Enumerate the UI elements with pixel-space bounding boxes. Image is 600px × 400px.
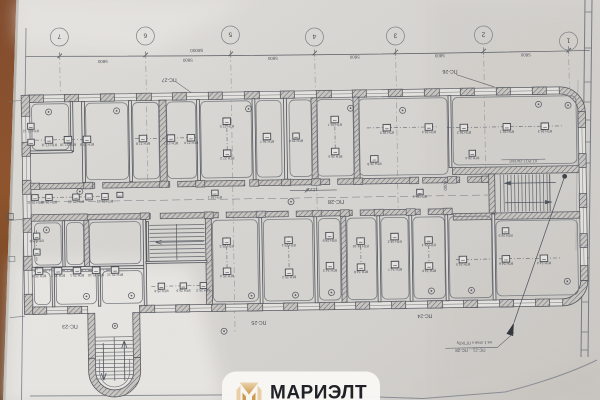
svg-text:МАРИЭЛТ: МАРИЭЛТ — [270, 383, 367, 400]
svg-text:ВТН 24 10: ВТН 24 10 — [353, 244, 369, 248]
svg-text:5600: 5600 — [349, 54, 359, 59]
svg-text:ВТН 24.9: ВТН 24.9 — [322, 238, 336, 242]
svg-text:3: 3 — [393, 31, 397, 38]
svg-text:на 1 этаж к ПГТКПу: на 1 этаж к ПГТКПу — [457, 340, 492, 346]
svg-text:ВТН 25.6: ВТН 25.6 — [154, 289, 168, 293]
svg-text:2: 2 — [481, 30, 485, 37]
svg-text:ВТН 24.8: ВТН 24.8 — [354, 270, 368, 274]
svg-text:7: 7 — [57, 33, 61, 40]
svg-text:ВТН 26.1: ВТН 26.1 — [208, 195, 222, 199]
svg-text:5800: 5800 — [267, 56, 277, 61]
svg-text:ВТН 24.5: ВТН 24.5 — [456, 262, 470, 266]
svg-text:ВТН 26.6: ВТН 26.6 — [328, 154, 342, 158]
svg-text:5800: 5800 — [434, 53, 444, 58]
svg-text:ВТН 26.7: ВТН 26.7 — [328, 122, 342, 126]
svg-text:ВТН 27.3: ВТН 27.3 — [220, 156, 234, 160]
svg-text:ВТН 26.1: ВТН 26.1 — [500, 130, 514, 134]
svg-text:58000: 58000 — [190, 48, 203, 53]
svg-text:ВТН 27.12: ВТН 27.12 — [23, 129, 39, 133]
svg-text:ВТН 24.3: ВТН 24.3 — [323, 268, 337, 272]
svg-text:ВТН 25.1: ВТН 25.1 — [282, 243, 296, 247]
svg-text:ВТН 27.11: ВТН 27.11 — [41, 143, 57, 147]
svg-text:ПС-24: ПС-24 — [417, 312, 432, 318]
svg-text:ВТН 25.1: ВТН 25.1 — [70, 273, 84, 277]
svg-text:ПС-23: ПС-23 — [62, 323, 78, 329]
svg-text:ВТН 25.10: ВТН 25.10 — [88, 273, 104, 277]
svg-text:ВТН 25.10: ВТН 25.10 — [41, 200, 57, 204]
svg-text:ВТН 25.3: ВТН 25.3 — [220, 244, 234, 248]
svg-text:ВТН 25.8: ВТН 25.8 — [29, 239, 43, 243]
svg-text:ВТН 24.7: ВТН 24.7 — [388, 267, 402, 271]
svg-text:ВТН 26.2: ВТН 26.2 — [457, 130, 471, 134]
svg-text:5600: 5600 — [520, 52, 530, 57]
svg-text:ВТН 24.2: ВТН 24.2 — [387, 239, 401, 243]
svg-text:6: 6 — [143, 31, 147, 38]
svg-text:ВТН 24.1: ВТН 24.1 — [422, 243, 436, 247]
svg-text:ПС-27: ПС-27 — [161, 76, 176, 82]
svg-text:6000: 6000 — [443, 181, 448, 191]
svg-text:ВТН 26.6: ВТН 26.6 — [289, 139, 303, 143]
svg-text:ВТН 24.6: ВТН 24.6 — [422, 269, 436, 273]
svg-text:ВТН 24.4: ВТН 24.4 — [537, 261, 551, 265]
svg-text:ВТН 27.6: ВТН 27.6 — [184, 140, 198, 144]
svg-text:ПС-25: ПС-25 — [251, 319, 266, 325]
svg-text:ВТН 26.8: ВТН 26.8 — [367, 162, 381, 166]
svg-text:5: 5 — [228, 30, 232, 37]
svg-text:ВТН 26.3: ВТН 26.3 — [538, 129, 552, 133]
svg-text:ВТН 25.3: ВТН 25.3 — [196, 288, 210, 292]
svg-text:ВТН 24.5: ВТН 24.5 — [498, 233, 512, 237]
svg-text:ВТН 27.5: ВТН 27.5 — [220, 124, 234, 128]
svg-text:ВТН 25.9: ВТН 25.9 — [32, 274, 46, 278]
svg-text:4: 4 — [312, 33, 316, 40]
svg-text:ВТН 25.12: ВТН 25.12 — [107, 272, 123, 276]
svg-text:ВТН 25.2: ВТН 25.2 — [282, 275, 296, 279]
svg-text:ПС-21... ПС-28: ПС-21... ПС-28 — [455, 348, 486, 353]
svg-text:ВТН 27.7: ВТН 27.7 — [164, 141, 178, 145]
svg-text:ВТН 24.6: ВТН 24.6 — [499, 261, 513, 265]
svg-text:5800: 5800 — [182, 58, 192, 63]
svg-text:ВТН 25.11: ВТН 25.11 — [27, 200, 43, 204]
svg-text:ВТН 26.7: ВТН 26.7 — [260, 139, 274, 143]
svg-text:ПС-26: ПС-26 — [442, 68, 457, 74]
svg-text:ВТН 27.10: ВТН 27.10 — [60, 142, 76, 146]
svg-text:ВТН 27.9: ВТН 27.9 — [80, 142, 94, 146]
svg-text:ВТН 25.7: ВТН 25.7 — [51, 273, 65, 277]
svg-text:5800: 5800 — [97, 59, 107, 64]
svg-text:ВТН 26.5: ВТН 26.5 — [380, 130, 394, 134]
svg-text:ВТН 26.4: ВТН 26.4 — [465, 156, 479, 160]
svg-text:ВТН 25.13: ВТН 25.13 — [97, 199, 113, 203]
svg-text:ВТН 26.4: ВТН 26.4 — [422, 130, 436, 134]
svg-text:ВТН 25.5: ВТН 25.5 — [176, 288, 190, 292]
svg-text:1: 1 — [566, 37, 570, 44]
svg-text:ВТН 25.4: ВТН 25.4 — [220, 274, 234, 278]
svg-text:ВТН 26.1: ВТН 26.1 — [413, 194, 427, 198]
svg-text:ВТН 25.12: ВТН 25.12 — [68, 199, 84, 203]
svg-text:ПС-28: ПС-28 — [328, 198, 344, 204]
svg-text:ВТН 27.8: ВТН 27.8 — [136, 141, 150, 145]
